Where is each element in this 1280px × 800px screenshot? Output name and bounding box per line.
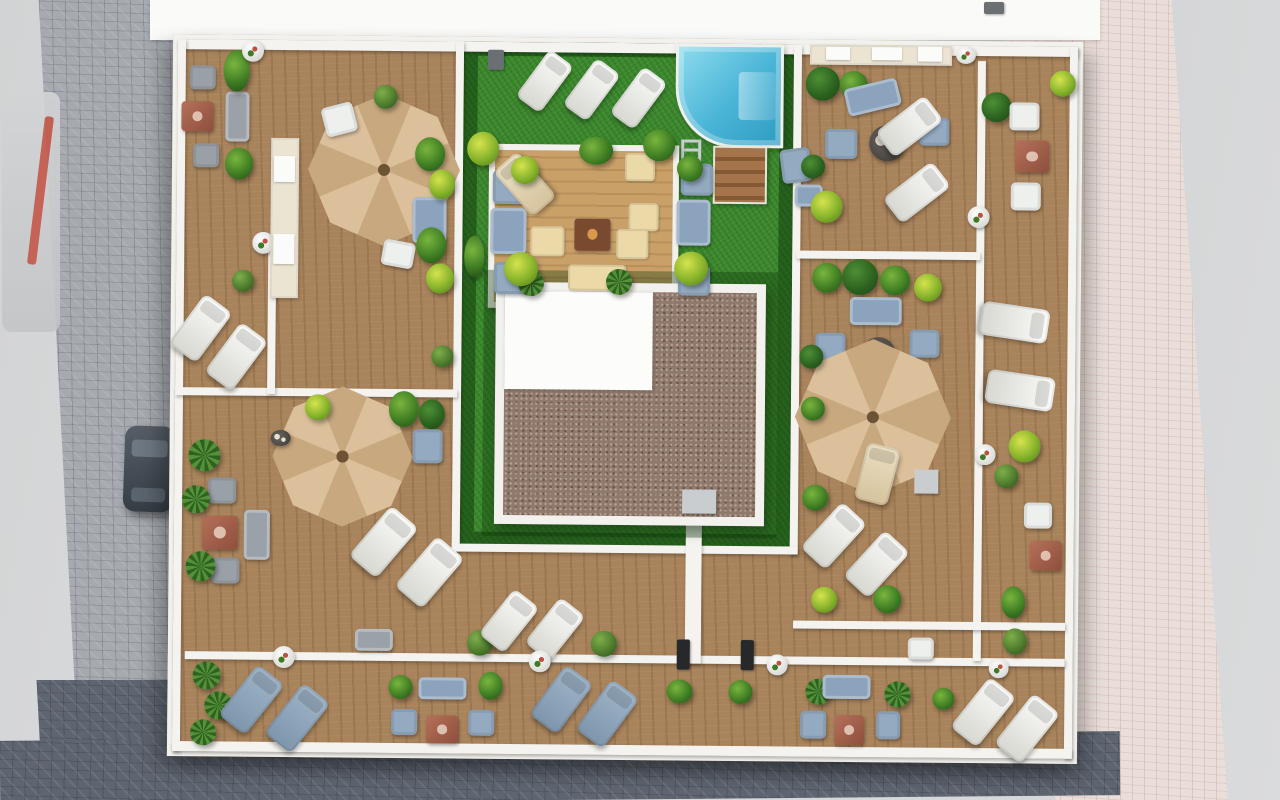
rm-plant-5 [799,345,823,369]
rm-sofa-blue [850,297,902,325]
bs-sofa-2 [822,675,870,699]
rc-topiary-1 [994,464,1018,488]
tr-pot-wall [956,46,976,64]
tl-plant-5 [416,227,446,263]
platform-table [574,219,610,251]
rm-pot-wall-1 [968,206,990,228]
platform-sofa-left [490,208,526,254]
rc-plant-3 [1008,430,1040,462]
bl-fire-table [202,515,238,549]
rm-side-table [914,470,938,494]
tr-bar-item-3 [918,47,942,62]
roof-vent [984,2,1004,14]
plant-lawn-4 [504,252,538,286]
rm-plant-8 [811,587,837,613]
rm-plant-3 [880,265,910,295]
bl-chair-gray-1 [208,477,236,503]
pool-stairs [713,146,768,204]
tr-armchair-1 [825,129,857,159]
tr-lounger-2 [882,161,951,224]
bl-pot [273,646,295,668]
platform-cushion-4 [616,229,648,259]
bs-plant-4 [728,680,752,704]
rc-plant-4 [1001,586,1025,618]
rooftop [167,34,1083,764]
rc-plant-1 [981,92,1011,122]
topright-divider-h [796,250,980,260]
bl-chair-gray-2 [211,557,239,583]
bs-bush [932,688,954,710]
rc-chair-2 [1011,182,1041,210]
bs-fire-table-1 [426,715,458,743]
rc-fire-table-2 [1030,541,1062,571]
rc-plant-2 [1050,71,1076,97]
bs-palm-3 [190,719,216,745]
tl-plant-3 [415,137,445,171]
rm-pot-wall-2 [974,444,995,465]
lawn-bottom-wall [452,543,798,554]
tl-chair-gray-1 [190,65,216,89]
bs-palm-5 [884,681,910,707]
bl-plant-1 [389,391,419,427]
bl-plant-3 [305,394,331,420]
platform-cushion-2 [628,203,658,231]
rc-lounger-2 [984,369,1056,413]
roof-edge-bottom [172,741,1072,759]
rc-fire-table-1 [1015,140,1049,172]
rc-topiary-2 [1003,628,1027,654]
rm-plant-7 [802,485,828,511]
bs-chair-2 [468,710,494,736]
bs-post-2 [741,640,754,670]
tl-chair-white-2 [380,238,416,269]
tl-chair-gray-2 [193,143,219,167]
bl-palm-1 [188,439,220,471]
mid-bench-gray [355,629,393,651]
tl-plant-2 [225,148,253,180]
bs-chair-4 [876,711,900,739]
rm-plant-6 [801,397,825,421]
bs-sofa-1 [418,677,466,699]
lawn-grill [488,50,504,70]
bl-palm-2 [182,485,210,513]
plant-lawn-3 [579,137,613,165]
rooftop-aerial-render [0,0,1280,800]
bl-topiary [431,345,453,367]
building-white-roof [504,291,653,390]
utility-box [682,490,716,514]
bl-palm-3 [185,551,215,581]
bs-post-1 [677,639,690,669]
rm-plant-4 [914,274,942,302]
tl-topiary [374,85,398,109]
platform-sofa-right [676,199,710,245]
br-chair-white [908,637,934,659]
tr-bar-item-2 [872,47,902,60]
rc-chair-1 [1009,102,1039,130]
tl-fire-table [181,101,213,131]
plant-lawn-2 [643,129,675,161]
plant-platform-tl [511,156,539,184]
bs-fire-table-2 [834,715,864,745]
roof-top-white-band [150,0,1100,40]
left-strip-topiary [232,270,254,292]
plant-pool-side [677,155,703,181]
tr-plant-4 [801,155,825,179]
platform-palm-2 [606,269,632,295]
tl-sofa-gray [225,92,249,142]
bl-plant-2 [419,399,445,429]
plant-lawn-5 [674,251,708,285]
mid-topiary-2 [591,631,617,657]
parked-car [123,425,176,513]
bl-sofa-gray [244,510,270,560]
rc-lounger-1 [979,301,1051,345]
bs-palm-1 [192,661,220,689]
tr-bar-item-1 [826,47,850,60]
bl-armchair-blue [412,429,442,463]
rm-plant-2 [842,259,878,295]
bl-fire-bowl [271,430,291,446]
tr-plant-1 [806,67,840,101]
right-terrace-divider-v [973,61,986,661]
bs-chair-1 [391,709,417,735]
kitchen-appliance-1 [274,156,295,182]
tl-plant-4 [429,169,455,199]
roof-edge-right [1064,47,1078,759]
bs-plant-1 [388,675,412,699]
rightmid-bottom-wall [793,620,1065,630]
bs-pot-2 [767,654,788,675]
bs-pot-1 [529,650,551,672]
platform-cushion-3 [530,226,564,256]
rm-plant-1 [812,263,842,293]
service-vehicle [2,92,60,332]
tr-plant-3 [811,191,843,223]
plant-lawn-1 [467,132,499,166]
rc-chair-3 [1024,502,1052,528]
tl-plant-6 [426,263,454,293]
bs-chair-3 [800,711,826,739]
rm-plant-9 [873,585,901,613]
bs-pot-3 [989,658,1009,678]
bs-plant-2 [478,672,502,700]
rm-armchair-2 [909,329,939,357]
kitchen-appliance-2 [273,234,294,264]
bs-plant-3 [666,679,692,703]
tl-pot-1 [242,40,264,62]
